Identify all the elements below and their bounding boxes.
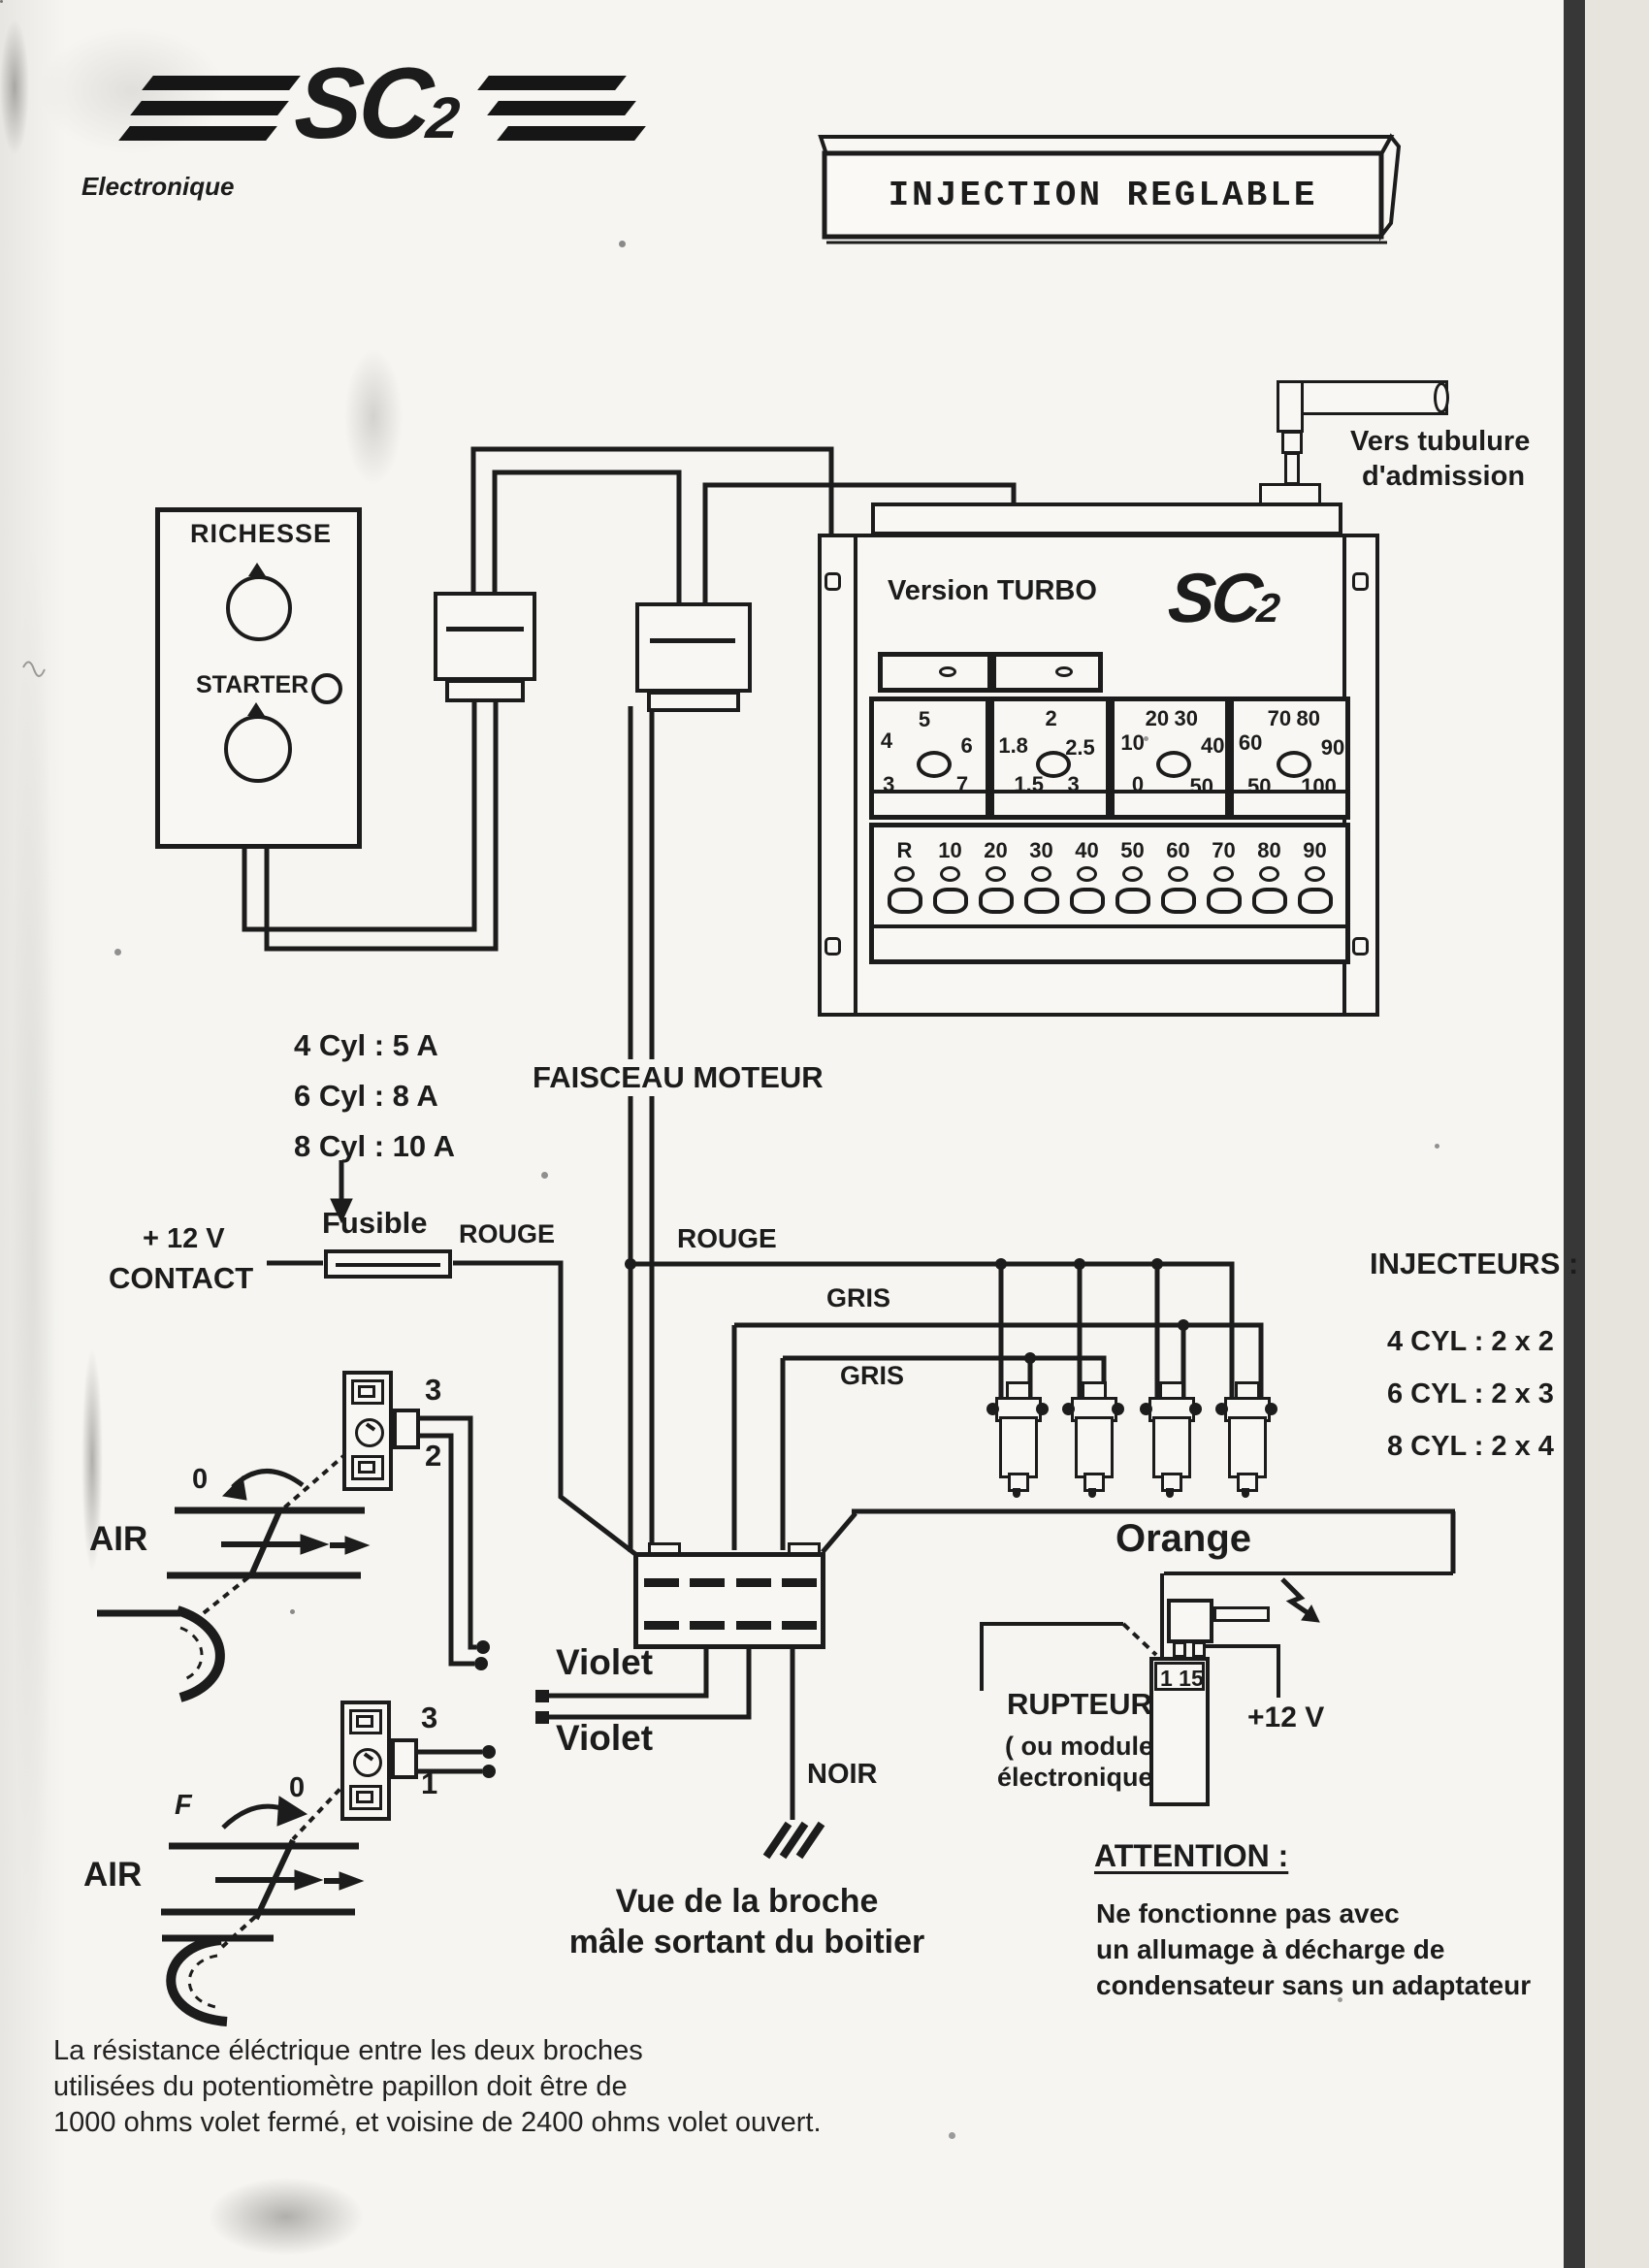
starter-knob-icon <box>224 715 292 783</box>
led-column: R <box>888 838 922 914</box>
led-small-icon <box>1168 866 1188 882</box>
pot2-pin-top: 3 <box>421 1701 437 1734</box>
list-item: utilisées du potentiomètre papillon doit… <box>53 2069 822 2105</box>
led-label: 20 <box>984 838 1007 863</box>
led-small-icon <box>1305 866 1325 882</box>
dial-number: 1.5 <box>1014 772 1044 797</box>
led-small-icon <box>894 866 915 882</box>
led-small-icon <box>1213 866 1234 882</box>
dial-2: 1.822.51.53 <box>994 701 1106 815</box>
led-big-icon <box>1252 888 1287 914</box>
logo-stripe <box>497 126 646 141</box>
led-column: 40 <box>1070 838 1105 914</box>
dial-number: 2 <box>1046 706 1057 731</box>
mounting-hole-icon <box>824 572 841 591</box>
scan-smudge <box>344 349 403 485</box>
led-grid: R102030405060708090 <box>874 827 1345 924</box>
dial-number: 30 <box>1174 706 1197 731</box>
wire-label-rouge-2: ROUGE <box>677 1224 777 1254</box>
list-item: 1000 ohms volet fermé, et voisine de 240… <box>53 2105 822 2141</box>
richesse-title: RICHESSE <box>190 520 332 549</box>
ht-prong-icon <box>1213 1606 1270 1622</box>
pot1-pin-top: 3 <box>425 1374 441 1407</box>
ecu-version-label: Version TURBO <box>888 576 1097 607</box>
led-big-icon <box>979 888 1014 914</box>
led-big-icon <box>1115 888 1150 914</box>
rupteur-label-3: électronique) <box>997 1764 1162 1793</box>
led-big-icon <box>1298 888 1333 914</box>
mounting-hole-icon <box>1352 572 1369 591</box>
led-column: 60 <box>1161 838 1196 914</box>
scan-smudge <box>81 1348 103 1571</box>
dial-knob-icon <box>1036 751 1071 778</box>
dial-number: 80 <box>1297 706 1320 731</box>
dial-number: 50 <box>1247 774 1271 799</box>
led-column: 10 <box>933 838 968 914</box>
wire-label-orange: Orange <box>1115 1517 1251 1560</box>
attention-title: ATTENTION : <box>1094 1839 1288 1873</box>
ecu-brand-logo: SC2 <box>1165 559 1281 638</box>
logo-stripe <box>118 126 277 141</box>
dial-number: 70 <box>1268 706 1291 731</box>
list-item: 4 Cyl : 5 A <box>294 1021 455 1071</box>
led-label: 90 <box>1303 838 1326 863</box>
led-column: 50 <box>1115 838 1150 914</box>
led-label: R <box>897 838 913 863</box>
connector-key-icon <box>788 1542 821 1555</box>
coil-supply-label: +12 V <box>1247 1701 1324 1733</box>
ecu-lid <box>871 502 1342 535</box>
dial-number: 0 <box>1132 772 1144 797</box>
attention-text: Ne fonctionne pas avecun allumage à déch… <box>1096 1895 1531 2003</box>
logo-stripe <box>487 101 636 115</box>
list-item: Ne fonctionne pas avec <box>1096 1895 1531 1931</box>
logo-stripe <box>477 76 627 90</box>
ecu-left-flange <box>854 535 857 1015</box>
starter-led-icon <box>311 673 342 704</box>
led-label: 50 <box>1120 838 1144 863</box>
dial-number: 50 <box>1190 774 1213 799</box>
admission-label-1: Vers tubulure <box>1350 427 1530 458</box>
list-item: 6 Cyl : 8 A <box>294 1071 455 1121</box>
dial-number: 6 <box>961 733 973 759</box>
led-column: 30 <box>1024 838 1059 914</box>
injector-icon <box>1224 1381 1267 1500</box>
rupteur-label-2: ( ou module <box>1005 1733 1153 1762</box>
rupteur-label-1: RUPTEUR <box>1007 1688 1152 1721</box>
dial-number: 10 <box>1120 730 1144 756</box>
led-small-icon <box>1259 866 1279 882</box>
dial-number: 1.8 <box>998 733 1028 759</box>
scan-squiggle <box>23 662 45 676</box>
list-item: 6 CYL : 2 x 3 <box>1387 1368 1554 1420</box>
led-big-icon <box>1024 888 1059 914</box>
led-small-icon <box>1077 866 1097 882</box>
starter-label: STARTER <box>196 672 308 699</box>
supply-label-2: CONTACT <box>109 1262 253 1295</box>
dial-number: 3 <box>883 772 894 797</box>
dial-number: 5 <box>919 707 930 732</box>
logo-tagline: Electronique <box>81 173 234 201</box>
fuse-icon <box>324 1249 452 1279</box>
wire-label-violet-1: Violet <box>556 1643 653 1683</box>
mounting-hole-icon <box>1352 937 1369 956</box>
connector-note-1: Vue de la broche <box>543 1884 951 1920</box>
fuse-label: Fusible <box>322 1207 428 1240</box>
led-big-icon <box>888 888 922 914</box>
led-small-icon <box>1122 866 1143 882</box>
screw-icon <box>939 666 956 677</box>
pot2-pin-bottom: 1 <box>421 1767 437 1800</box>
led-column: 90 <box>1298 838 1333 914</box>
throttle2-zero: 0 <box>289 1773 305 1804</box>
air-label-2: AIR <box>83 1857 142 1895</box>
logo-text: SC2 <box>290 47 463 162</box>
logo-subscript: 2 <box>423 85 458 150</box>
dial-1: 45637 <box>874 701 986 815</box>
scan-edge-line <box>1564 0 1585 2268</box>
wire-label-gris-2: GRIS <box>840 1362 904 1391</box>
scan-speckles <box>0 0 3 3</box>
dial-number: 40 <box>1201 733 1224 759</box>
footnote-text: La résistance éléctrique entre les deux … <box>53 2033 822 2141</box>
led-label: 10 <box>938 838 961 863</box>
ecu-led-panel: R102030405060708090 <box>869 823 1350 964</box>
led-small-icon <box>1031 866 1051 882</box>
amp-ratings: 4 Cyl : 5 A6 Cyl : 8 A8 Cyl : 10 A <box>294 1021 455 1172</box>
led-big-icon <box>933 888 968 914</box>
connector-note-2: mâle sortant du boitier <box>543 1925 951 1960</box>
dial-number: 90 <box>1321 735 1344 761</box>
list-item: 8 CYL : 2 x 4 <box>1387 1420 1554 1473</box>
page-title: INJECTION REGLABLE <box>824 177 1381 215</box>
knob-pointer-icon <box>248 563 266 576</box>
pot1-pin-bottom: 2 <box>425 1440 441 1473</box>
dial-knob-icon <box>917 751 952 778</box>
led-label: 70 <box>1212 838 1235 863</box>
dial-number: 20 <box>1146 706 1169 731</box>
scan-smudge <box>0 19 29 155</box>
list-item: La résistance éléctrique entre les deux … <box>53 2033 822 2069</box>
injector-icon <box>995 1381 1038 1500</box>
supply-label-1: + 12 V <box>143 1224 225 1255</box>
ht-plug-icon <box>1167 1599 1213 1643</box>
list-item: condensateur sans un adaptateur <box>1096 1967 1531 2003</box>
dial-number: 100 <box>1301 774 1337 799</box>
logo-stripe <box>130 101 289 115</box>
led-label: 40 <box>1075 838 1098 863</box>
wire-label-violet-2: Violet <box>556 1719 653 1759</box>
faisceau-label: FAISCEAU MOTEUR <box>527 1059 829 1096</box>
mounting-hole-icon <box>824 937 841 956</box>
injector-icon <box>1148 1381 1191 1500</box>
injector-icon <box>1071 1381 1114 1500</box>
led-strip <box>874 924 1345 954</box>
dial-knob-icon <box>1156 751 1191 778</box>
coil-terminals: 1 15 <box>1160 1667 1204 1691</box>
wire-label-rouge-1: ROUGE <box>459 1220 555 1249</box>
scanned-page: SC2 Electronique INJECTION REGLABLE Vers… <box>0 0 1649 2268</box>
dial-number: 3 <box>1067 772 1079 797</box>
dial-3: 10203040050 <box>1115 701 1226 815</box>
male-connector-block <box>633 1552 825 1649</box>
screw-icon <box>1055 666 1073 677</box>
throttle1-zero: 0 <box>192 1465 208 1496</box>
led-big-icon <box>1161 888 1196 914</box>
list-item: un allumage à décharge de <box>1096 1931 1531 1967</box>
scan-edge-margin <box>1585 0 1649 2268</box>
dial-4: 6070809050100 <box>1234 701 1345 815</box>
list-item: 4 CYL : 2 x 2 <box>1387 1315 1554 1368</box>
led-label: 60 <box>1166 838 1189 863</box>
ecu-dial-panel: 45637 1.822.51.53 10203040050 6070809050… <box>869 697 1350 820</box>
led-label: 30 <box>1029 838 1052 863</box>
admission-label-2: d'admission <box>1362 462 1525 493</box>
knob-pointer-icon <box>247 702 265 716</box>
dial-number: 7 <box>956 772 968 797</box>
dial-number: 4 <box>881 729 892 754</box>
led-column: 70 <box>1207 838 1242 914</box>
led-small-icon <box>986 866 1006 882</box>
scan-smudge <box>209 2178 364 2255</box>
wire-label-gris-1: GRIS <box>826 1284 890 1313</box>
list-item: 8 Cyl : 10 A <box>294 1121 455 1172</box>
injectors-table: 4 CYL : 2 x 26 CYL : 2 x 38 CYL : 2 x 4 <box>1387 1315 1554 1473</box>
dial-number: 60 <box>1239 730 1262 756</box>
led-column: 80 <box>1252 838 1287 914</box>
injectors-title: INJECTEURS : <box>1370 1247 1578 1280</box>
logo-stripe <box>142 76 301 90</box>
dial-number: 2.5 <box>1065 735 1095 761</box>
richesse-knob-icon <box>226 575 292 641</box>
connector-key-icon <box>648 1542 681 1555</box>
wire-label-noir: NOIR <box>807 1760 878 1791</box>
throttle2-mark: F <box>175 1791 192 1822</box>
led-column: 20 <box>979 838 1014 914</box>
led-small-icon <box>940 866 960 882</box>
led-big-icon <box>1207 888 1242 914</box>
ecu-slots <box>878 652 1103 693</box>
led-big-icon <box>1070 888 1105 914</box>
led-label: 80 <box>1257 838 1280 863</box>
